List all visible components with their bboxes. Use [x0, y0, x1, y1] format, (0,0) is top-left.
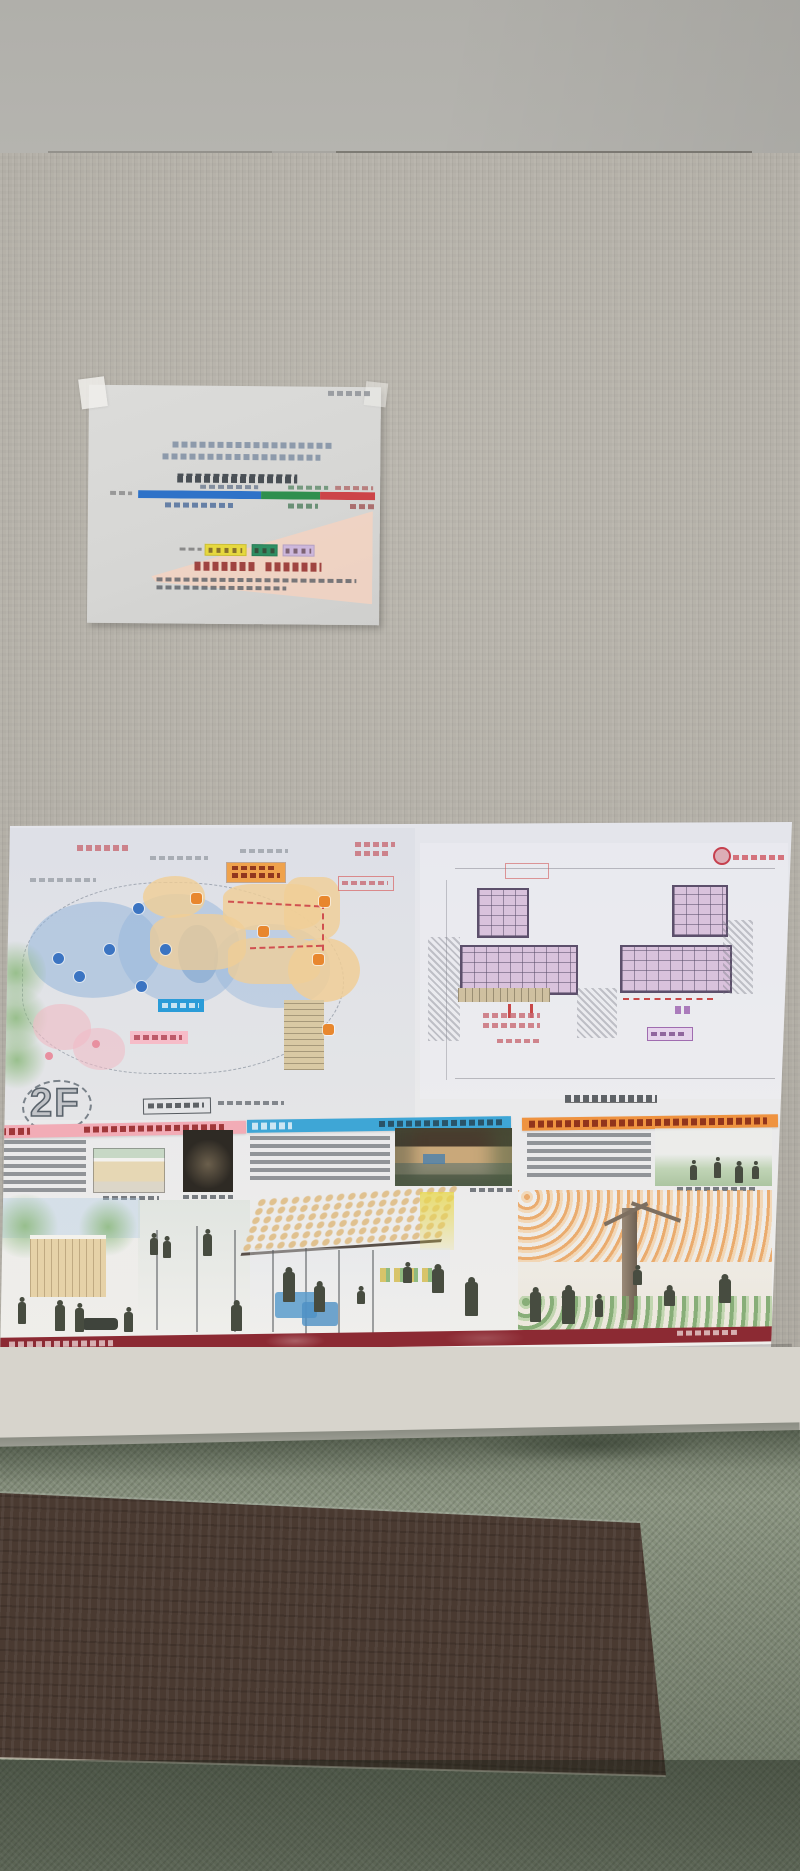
pink-outline-label-text — [342, 881, 388, 885]
fineprint-line-2 — [156, 585, 286, 590]
plan-sketch-note-3 — [30, 878, 96, 882]
column — [372, 1250, 374, 1334]
panel-right-header-text — [529, 1117, 767, 1127]
panel-left-header-tag — [0, 1128, 30, 1136]
stacked-timeline-bar — [138, 490, 375, 500]
room-block-4 — [620, 945, 732, 993]
orange-marker-2 — [319, 896, 330, 907]
blue-marker-4 — [74, 971, 85, 982]
blue-marker-1 — [133, 903, 144, 914]
hatch-area-1 — [428, 937, 460, 1041]
plan-red-note-1 — [483, 1013, 540, 1018]
person-silhouette — [18, 1302, 26, 1324]
plan-red-note-3 — [497, 1039, 542, 1043]
paper-title-line-2 — [162, 453, 320, 460]
orange-zone-4 — [284, 877, 340, 939]
red-route-dash-3 — [322, 903, 324, 961]
person-silhouette — [432, 1269, 444, 1293]
photo-blue-accent — [423, 1154, 445, 1164]
person-silhouette — [465, 1282, 478, 1316]
person-silhouette — [714, 1162, 721, 1178]
paper-corner-code-text — [328, 391, 370, 396]
purple-label-box — [647, 1027, 693, 1041]
plan-red-note-2 — [483, 1023, 540, 1028]
blue-marker-2 — [104, 944, 115, 955]
dimension-line-top — [455, 868, 775, 869]
orange-label-text-2 — [232, 873, 280, 878]
bar-label-top-2 — [288, 485, 328, 489]
pink-marker-1 — [45, 1052, 53, 1060]
floor-plan-caption — [565, 1095, 657, 1103]
orange-marker-1 — [191, 893, 202, 904]
person-silhouette — [403, 1267, 412, 1283]
footer-text-right — [677, 1330, 737, 1336]
rendering-right-plaza — [518, 1192, 772, 1337]
bar-label-top-1 — [200, 485, 258, 490]
plan-sketch-note-1 — [150, 856, 208, 860]
blue-marker-3 — [53, 953, 64, 964]
red-stamp-icon — [713, 847, 731, 865]
dark-model-photo — [183, 1130, 233, 1192]
site-plan-caption-note — [218, 1101, 284, 1105]
taped-chart-paper — [87, 385, 381, 626]
bar-label-bottom-1 — [165, 502, 233, 508]
tape-top-left — [78, 376, 108, 409]
segment-blue — [138, 490, 261, 499]
rendering-hall-interior — [250, 1248, 450, 1336]
orange-marker-4 — [313, 954, 324, 965]
red-bold-text-left — [194, 562, 256, 572]
stair-strip — [284, 1000, 324, 1070]
person-silhouette — [664, 1290, 675, 1306]
green-bushes — [518, 1296, 772, 1330]
orange-round-hall — [288, 938, 360, 1002]
column — [196, 1226, 198, 1332]
person-silhouette — [150, 1238, 158, 1255]
person-silhouette — [314, 1286, 325, 1312]
person-silhouette — [562, 1290, 575, 1324]
panel-left-text-block — [2, 1140, 86, 1196]
column — [338, 1250, 340, 1334]
chip-yellow — [205, 544, 247, 556]
warm-interior-photo — [395, 1128, 512, 1186]
person-silhouette — [690, 1165, 697, 1180]
panel-middle-header-text — [379, 1119, 503, 1127]
chip-green — [252, 544, 278, 556]
plan-note-red-1 — [77, 845, 129, 851]
blue-marker-6 — [136, 981, 147, 992]
purple-label-text — [651, 1032, 687, 1036]
floor-bottom-shadow — [0, 1760, 800, 1871]
person-silhouette — [530, 1292, 541, 1322]
purple-glyph — [675, 1006, 691, 1014]
person-silhouette — [231, 1305, 242, 1331]
plan-note-red-3 — [355, 851, 391, 856]
red-bold-text-right — [265, 562, 321, 571]
site-plan-caption-text — [148, 1103, 204, 1109]
panel-right-text-block — [527, 1133, 651, 1179]
room-block-1 — [477, 888, 529, 938]
column — [272, 1250, 274, 1332]
paper-heading-text — [177, 474, 297, 484]
orange-marker-3 — [258, 926, 269, 937]
pink-label-chip — [130, 1031, 188, 1044]
room-block-3 — [672, 885, 728, 937]
floor-label: 2F — [30, 1081, 81, 1126]
person-silhouette — [357, 1291, 365, 1304]
rendering-building-mass — [30, 1235, 106, 1297]
blue-label-chip — [158, 999, 204, 1012]
person-silhouette — [719, 1279, 731, 1303]
blue-label-text — [162, 1003, 199, 1008]
bar-label-bottom-3 — [350, 504, 374, 509]
person-silhouette — [75, 1308, 84, 1332]
dimension-line-bottom — [455, 1078, 775, 1079]
paper-title-line-1 — [172, 441, 333, 448]
warm-photo-caption — [470, 1188, 512, 1192]
photo-scene: 2F — [0, 0, 800, 1871]
bar-label-bottom-2 — [288, 503, 318, 508]
bar-label-top-3 — [335, 486, 373, 490]
blue-marker-5 — [160, 944, 171, 955]
segment-red — [321, 492, 376, 500]
person-silhouette — [595, 1299, 603, 1317]
hatch-area-2 — [577, 988, 617, 1038]
panel-middle-header-tag — [252, 1122, 292, 1130]
person-silhouette — [55, 1305, 65, 1331]
dark-photo-caption — [183, 1195, 233, 1199]
orange-marker-5 — [323, 1024, 334, 1035]
person-silhouette — [283, 1272, 295, 1302]
person-silhouette — [124, 1312, 133, 1332]
person-silhouette — [203, 1234, 212, 1256]
person-silhouette — [633, 1270, 642, 1285]
orange-label-text-1 — [232, 866, 276, 870]
bar-start-label — [110, 491, 132, 495]
pink-label-text — [134, 1035, 182, 1040]
orange-tree-canopy — [518, 1190, 772, 1262]
rendering-car — [82, 1318, 118, 1330]
site-plan-caption-box — [143, 1097, 211, 1114]
person-silhouette — [735, 1166, 743, 1183]
section-drawing — [93, 1148, 165, 1193]
plan-sketch-note-2 — [240, 849, 288, 853]
hatch-area-3 — [723, 920, 753, 994]
plan-red-underline — [623, 998, 713, 1000]
chip-row-lead-mark — [180, 548, 202, 551]
orange-label-chip — [227, 863, 285, 882]
panel-middle-text-block — [250, 1136, 390, 1180]
tan-strip — [458, 988, 550, 1002]
person-silhouette — [752, 1166, 759, 1179]
ceiling — [0, 0, 800, 153]
pink-marker-2 — [92, 1040, 100, 1048]
chip-lavender — [283, 544, 315, 556]
person-silhouette — [163, 1241, 171, 1258]
segment-green — [261, 491, 320, 500]
stamp-red-text — [733, 855, 785, 860]
yellow-roof-wash — [420, 1192, 454, 1250]
pink-zone-2 — [73, 1028, 125, 1070]
pink-outline-label — [338, 876, 394, 891]
plan-note-red-2 — [355, 842, 395, 847]
plan-red-outline-box — [505, 863, 549, 879]
